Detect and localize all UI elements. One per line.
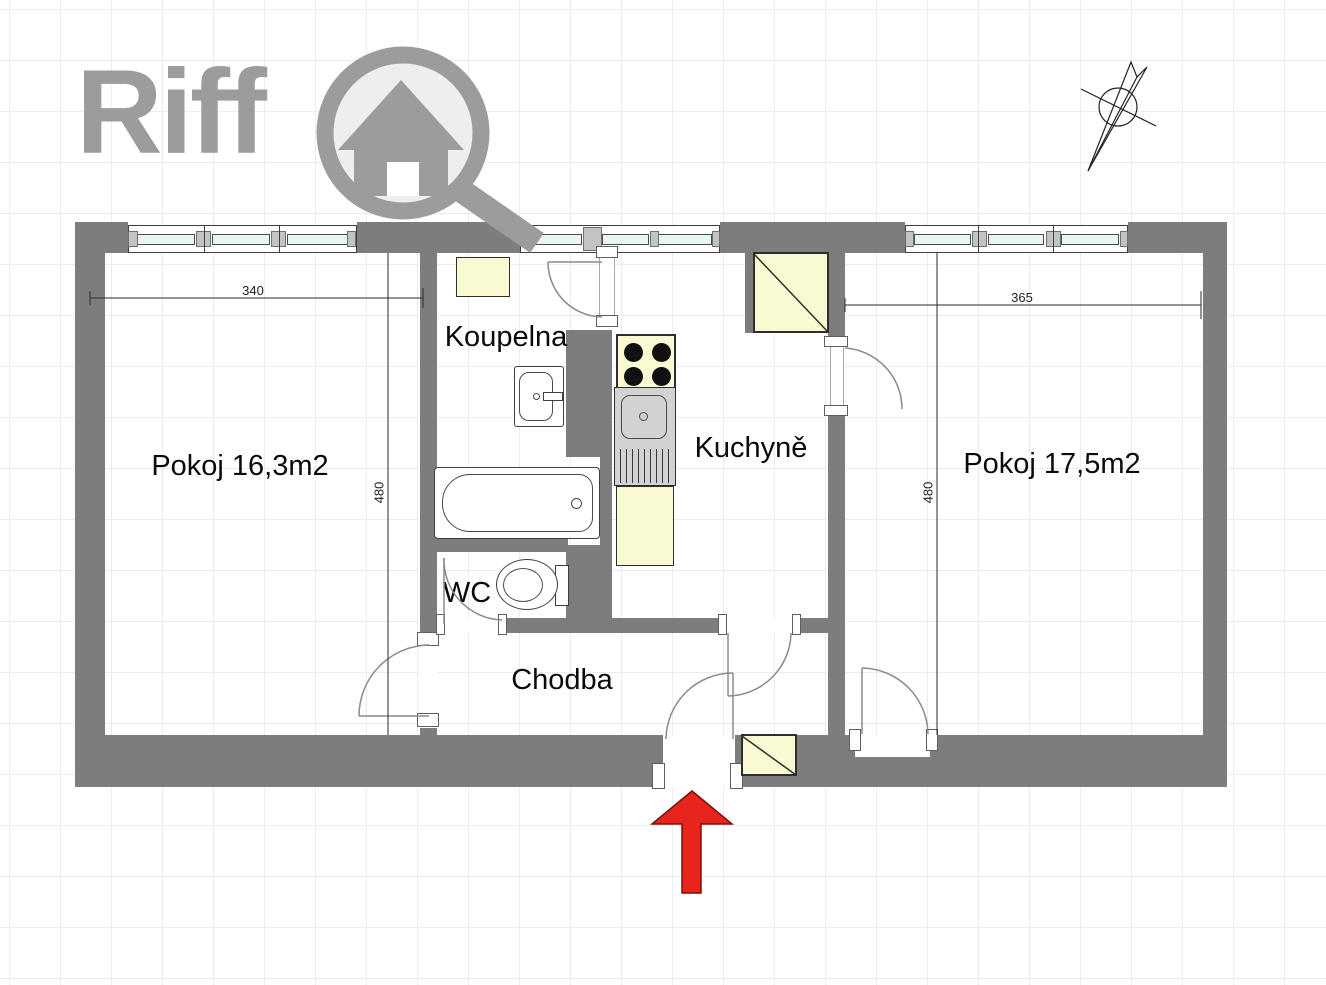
stove-burner — [624, 367, 643, 386]
dimension-label-left-width: 340 — [233, 283, 273, 298]
window-frame-divider — [279, 225, 280, 253]
room-label-kitchen: Kuchyně — [671, 432, 831, 465]
door-jamb — [417, 713, 439, 727]
wall-shaft-side — [745, 253, 753, 333]
window-mullion — [650, 231, 659, 247]
house-door — [387, 162, 419, 196]
window-mullion — [712, 231, 720, 247]
outer-wall-top-seg2 — [357, 222, 520, 253]
window-mullion — [905, 231, 914, 247]
window-mullion — [520, 231, 529, 247]
wall-bath-kitchen-lower — [566, 545, 612, 618]
window-pane — [287, 234, 348, 245]
door-arc-rightroom-hall — [862, 668, 928, 734]
dimension-label-right-height: 480 — [921, 475, 936, 511]
brand-logo-text: Riff — [76, 52, 264, 172]
window-pane — [658, 234, 712, 245]
entrance-arrow — [652, 791, 732, 893]
window-pane — [602, 234, 649, 245]
room-label-bathroom: Koupelna — [426, 321, 586, 354]
room-label-wc: WC — [436, 577, 498, 610]
door-opening-kitchen-hall — [727, 618, 792, 633]
outer-wall-bottom-seg1 — [75, 735, 663, 787]
toilet-bowl-inner — [503, 568, 543, 602]
room-label-left: Pokoj 16,3m2 — [120, 450, 360, 483]
room-label-hallway: Chodba — [482, 664, 642, 697]
faucet-icon — [533, 393, 540, 400]
wall-leftroom-right — [420, 253, 437, 633]
north-arrow-icon — [1081, 62, 1156, 171]
door-arc-bathroom — [548, 262, 602, 317]
magnifier-lens — [325, 55, 481, 211]
kitchen-base-cabinet — [616, 486, 674, 566]
bathtub-drain — [571, 498, 582, 509]
window-mullion — [128, 231, 138, 247]
door-jamb — [824, 336, 848, 347]
bathroom-cabinet — [456, 257, 510, 297]
window-pane — [1061, 234, 1119, 245]
outer-wall-top-seg3 — [720, 222, 905, 253]
house-body — [354, 150, 448, 196]
window-mullion — [972, 231, 987, 247]
kitchen-drainer-hatch — [620, 449, 670, 483]
outer-wall-right — [1203, 222, 1227, 787]
door-arc-entrance — [666, 673, 733, 739]
door-jamb — [652, 763, 665, 789]
window-pane — [914, 234, 971, 245]
window-pane — [528, 234, 582, 245]
window-mullion — [347, 231, 356, 247]
floor-plan-page: Pokoj 16,3m2 Koupelna Kuchyně WC Chodba … — [0, 0, 1326, 985]
wall-bath-wc-divider — [437, 538, 568, 552]
window-mullion — [1120, 231, 1128, 247]
window-frame-divider — [204, 225, 205, 253]
wall-hall-north-seg2 — [503, 618, 723, 633]
door-arc-kitchen-hall — [728, 633, 791, 696]
wall-leftroom-right-stub — [420, 728, 437, 735]
faucet-handle — [543, 392, 563, 401]
window-pane — [137, 234, 195, 245]
door-opening-rightroom-hall — [855, 735, 930, 757]
wall-bath-kitchen-thin — [600, 457, 612, 545]
window-pane — [988, 234, 1044, 245]
shaft-kitchen — [753, 252, 829, 333]
door-jamb — [926, 729, 938, 751]
house-roof — [338, 80, 464, 150]
wall-hall-north-seg3 — [797, 618, 828, 633]
door-opening-bathroom — [599, 256, 615, 317]
shaft-entrance — [741, 734, 797, 776]
door-jamb — [436, 614, 445, 635]
window-frame-divider — [978, 225, 979, 253]
door-jamb — [824, 405, 848, 416]
door-opening-wc — [445, 618, 498, 633]
door-arc-leftroom — [359, 645, 429, 716]
door-jamb — [718, 614, 727, 635]
stove-burner — [652, 343, 671, 362]
window-frame-divider — [1053, 225, 1054, 253]
stove-burner — [624, 343, 643, 362]
door-jamb — [498, 614, 507, 635]
door-jamb — [792, 614, 801, 635]
door-opening-kitchen-rightroom — [830, 345, 844, 411]
outer-wall-left — [75, 222, 105, 787]
stove-burner — [652, 367, 671, 386]
outer-wall-bottom-seg2 — [735, 735, 1227, 787]
kitchen-sink-drain — [639, 412, 648, 421]
door-jamb — [596, 246, 618, 258]
dimension-label-left-height: 480 — [372, 475, 387, 511]
door-opening-leftroom — [420, 646, 437, 713]
door-jamb — [596, 315, 618, 327]
window-pane — [212, 234, 270, 245]
door-opening-entrance — [665, 735, 730, 787]
door-jamb — [849, 729, 861, 751]
dimension-label-right-width: 365 — [1002, 290, 1042, 305]
door-arc-kitchen-rightroom — [845, 348, 902, 409]
room-label-right: Pokoj 17,5m2 — [932, 448, 1172, 481]
wall-kitchen-rightroom-upper — [828, 253, 845, 345]
